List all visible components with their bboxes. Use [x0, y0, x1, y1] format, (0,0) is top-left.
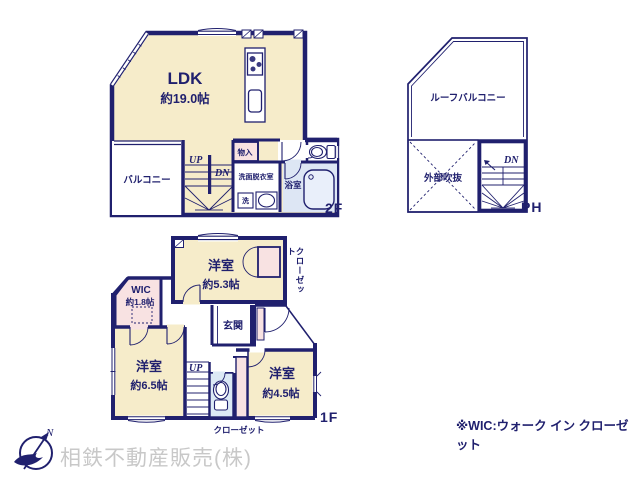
stairs-up-label-2f: UP	[189, 155, 203, 166]
closet-label-bottom: クローゼット	[213, 425, 264, 435]
room-label-bedroom-65: 洋室	[136, 359, 162, 374]
floor-label-2f: 2F	[325, 200, 343, 216]
room-bedroom-45	[248, 350, 315, 418]
room-label-ldk: LDK	[168, 69, 204, 88]
room-label-void: 外部吹抜	[423, 172, 463, 184]
compass-icon: N	[12, 424, 62, 476]
room-label-storage: 物入	[238, 147, 253, 157]
room-label-entrance: 玄関	[223, 319, 243, 332]
floorplan-ph: ルーフバルコニー 外部吹抜 DN	[398, 30, 540, 222]
shoe-cabinet-1f	[257, 308, 264, 340]
room-label-bath: 浴室	[284, 180, 302, 190]
room-label-roof-balcony: ルーフバルコニー	[430, 92, 505, 104]
room-size-bedroom-65: 約6.5帖	[130, 378, 167, 392]
stairs-1f	[187, 372, 209, 414]
stair-divider-2f	[208, 155, 211, 194]
room-size-bedroom-45: 約4.5帖	[262, 386, 299, 400]
room-label-wic: WIC	[131, 285, 150, 296]
floorplan-2f: LDK 約19.0帖 バルコニー 物入 洗面脱衣室 洗 浴室 UP DN	[108, 28, 346, 220]
wall-block	[250, 305, 256, 345]
room-label-balcony: バルコニー	[123, 174, 170, 186]
floorplan-1f: 洋室 約5.3帖 WIC 約1.8帖 玄関 洋室 約6.5帖 洋室 約4.5帖 …	[105, 232, 345, 437]
stairs-down-label-ph: DN	[503, 155, 519, 166]
closet-label-vertical: クローゼット	[287, 247, 304, 299]
room-size-bedroom-53: 約5.3帖	[202, 277, 239, 291]
closet-bedroom-45	[236, 357, 247, 417]
room-size-wic: 約1.8帖	[126, 297, 155, 307]
stair-room-ph	[480, 142, 526, 211]
room-label-bedroom-45: 洋室	[269, 366, 295, 381]
floor-label-1f: 1F	[320, 409, 338, 425]
stairs-up-label-1f: UP	[189, 363, 203, 374]
toilet-fixture-2f	[310, 146, 336, 159]
compass-bird	[14, 453, 43, 465]
room-size-ldk: 約19.0帖	[160, 91, 210, 106]
stairs-down-label-2f: DN	[214, 168, 230, 179]
compass-north-label: N	[45, 427, 54, 439]
toilet-fixture-1f	[214, 381, 229, 410]
floor-label-ph: PH	[521, 199, 542, 215]
company-name: 相鉄不動産販売(株)	[60, 442, 252, 472]
room-label-washroom: 洗面脱衣室	[239, 172, 274, 181]
room-label-bedroom-53: 洋室	[208, 258, 234, 273]
wic-note: ※WIC:ウォーク イン クローゼット	[456, 415, 640, 453]
closet-bedroom-53	[258, 247, 280, 277]
room-label-laundry: 洗	[242, 196, 249, 205]
